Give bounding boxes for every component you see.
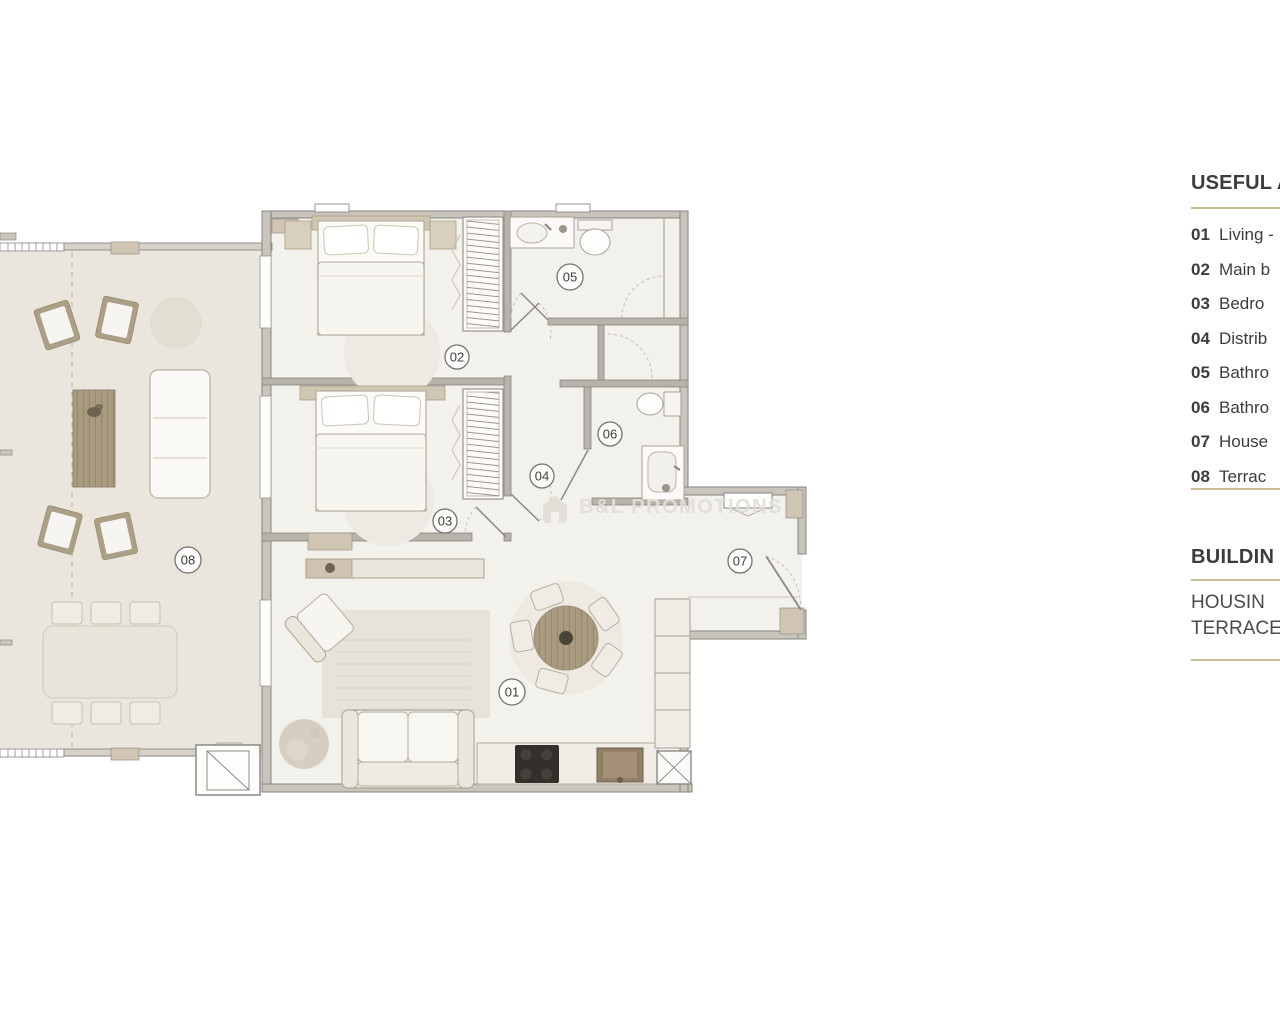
legend-item-07: 07House: [1191, 425, 1274, 460]
legend-item-label: Distrib: [1219, 329, 1267, 349]
nightstand: [285, 221, 311, 249]
separator: [1191, 579, 1280, 581]
separator: [1191, 659, 1280, 661]
room-label-04-text: 04: [535, 469, 549, 484]
pillow: [323, 225, 368, 255]
legend-item-05: 05Bathro: [1191, 356, 1274, 391]
toilet: [637, 392, 681, 416]
wall-vent: [556, 204, 590, 212]
building-line-terrace: TERRACE: [1191, 618, 1280, 640]
legend-item-num: 02: [1191, 260, 1219, 280]
floor-plan: 01 02 03 04 05 06: [0, 0, 1280, 1024]
room-label-02: 02: [445, 345, 469, 369]
room-label-06-text: 06: [603, 427, 617, 442]
terrace-wall-top: [64, 243, 272, 250]
building-title: BUILDIN: [1191, 546, 1274, 569]
legend-item-label: Main b: [1219, 260, 1270, 280]
room-label-07: 07: [728, 549, 752, 573]
double-bed: [316, 391, 426, 511]
legend-item-label: Bathro: [1219, 398, 1269, 418]
separator: [1191, 488, 1280, 490]
terrace-plant-circle: [150, 297, 202, 349]
room-label-05-text: 05: [563, 270, 577, 285]
sofa: [342, 710, 474, 788]
terrace-pillar-bottom: [111, 748, 139, 760]
entry-closet: [724, 493, 772, 508]
room-label-04: 04: [530, 464, 554, 488]
legend: USEFUL A 01Living - 02Main b 03Bedro 04D…: [1191, 0, 1280, 1024]
wall-stub: [0, 640, 12, 645]
room-label-03-text: 03: [438, 514, 452, 529]
wall-stub: [0, 450, 12, 455]
floor-plan-svg: 01 02 03 04 05 06: [0, 0, 1280, 1024]
shaft-marker: [657, 751, 691, 784]
window: [260, 256, 271, 328]
legend-item-num: 05: [1191, 363, 1219, 383]
duvet: [316, 434, 426, 511]
legend-item-06: 06Bathro: [1191, 391, 1274, 426]
legend-item-label: Bedro: [1219, 294, 1264, 314]
separator: [1191, 207, 1280, 209]
legend-items: 01Living - 02Main b 03Bedro 04Distrib 05…: [1191, 218, 1274, 494]
bathroom-middle: [637, 392, 684, 500]
terrace-lounger: [150, 370, 210, 498]
legend-item-num: 04: [1191, 329, 1219, 349]
terrace-pillar-top: [111, 242, 139, 254]
pillow: [373, 395, 420, 426]
floor-plan-page: 01 02 03 04 05 06: [0, 0, 1280, 1024]
legend-title: USEFUL A: [1191, 172, 1280, 195]
window: [260, 600, 271, 686]
sink-vanity: [642, 446, 684, 500]
room-label-05: 05: [557, 264, 583, 290]
window: [260, 396, 271, 498]
terrace-railing-top: [0, 243, 64, 251]
room-label-01-text: 01: [505, 685, 519, 700]
legend-item-02: 02Main b: [1191, 253, 1274, 288]
tv-console: [306, 559, 484, 578]
sink-vanity: [510, 217, 574, 248]
toilet: [578, 220, 612, 255]
legend-item-num: 08: [1191, 467, 1219, 487]
room-label-08-text: 08: [181, 553, 195, 568]
legend-item-num: 07: [1191, 432, 1219, 452]
table-centerpiece: [559, 631, 573, 645]
duvet: [318, 262, 424, 335]
wall-stub: [0, 233, 16, 240]
legend-item-04: 04Distrib: [1191, 322, 1274, 357]
stove: [515, 745, 559, 783]
room-label-01: 01: [499, 679, 525, 705]
room-label-02-text: 02: [450, 350, 464, 365]
legend-item-num: 06: [1191, 398, 1219, 418]
room-label-03: 03: [433, 509, 457, 533]
kitchen-sink: [597, 748, 643, 783]
legend-item-03: 03Bedro: [1191, 287, 1274, 322]
legend-item-num: 03: [1191, 294, 1219, 314]
wall-vent: [315, 204, 349, 212]
room-label-08: 08: [175, 547, 201, 573]
legend-item-label: House: [1219, 432, 1268, 452]
dining-table-set: [509, 581, 624, 695]
legend-item-label: Living -: [1219, 225, 1274, 245]
legend-item-01: 01Living -: [1191, 218, 1274, 253]
legend-item-label: Terrac: [1219, 467, 1266, 487]
terrace-dining-set: [43, 602, 177, 724]
terrace-railing-bottom: [0, 749, 64, 757]
nightstand: [430, 221, 456, 249]
legend-item-num: 01: [1191, 225, 1219, 245]
pillow: [321, 395, 368, 426]
plant-icon: [325, 563, 335, 573]
double-bed: [318, 221, 424, 335]
pouf: [279, 719, 329, 769]
pillow: [373, 225, 418, 255]
tall-cabinets: [655, 599, 690, 748]
building-line-housing: HOUSIN: [1191, 592, 1265, 614]
terrace-wood-table: [73, 390, 115, 487]
external-unit: [196, 745, 260, 795]
room-label-07-text: 07: [733, 554, 747, 569]
legend-item-label: Bathro: [1219, 363, 1269, 383]
room-label-06: 06: [598, 422, 622, 446]
